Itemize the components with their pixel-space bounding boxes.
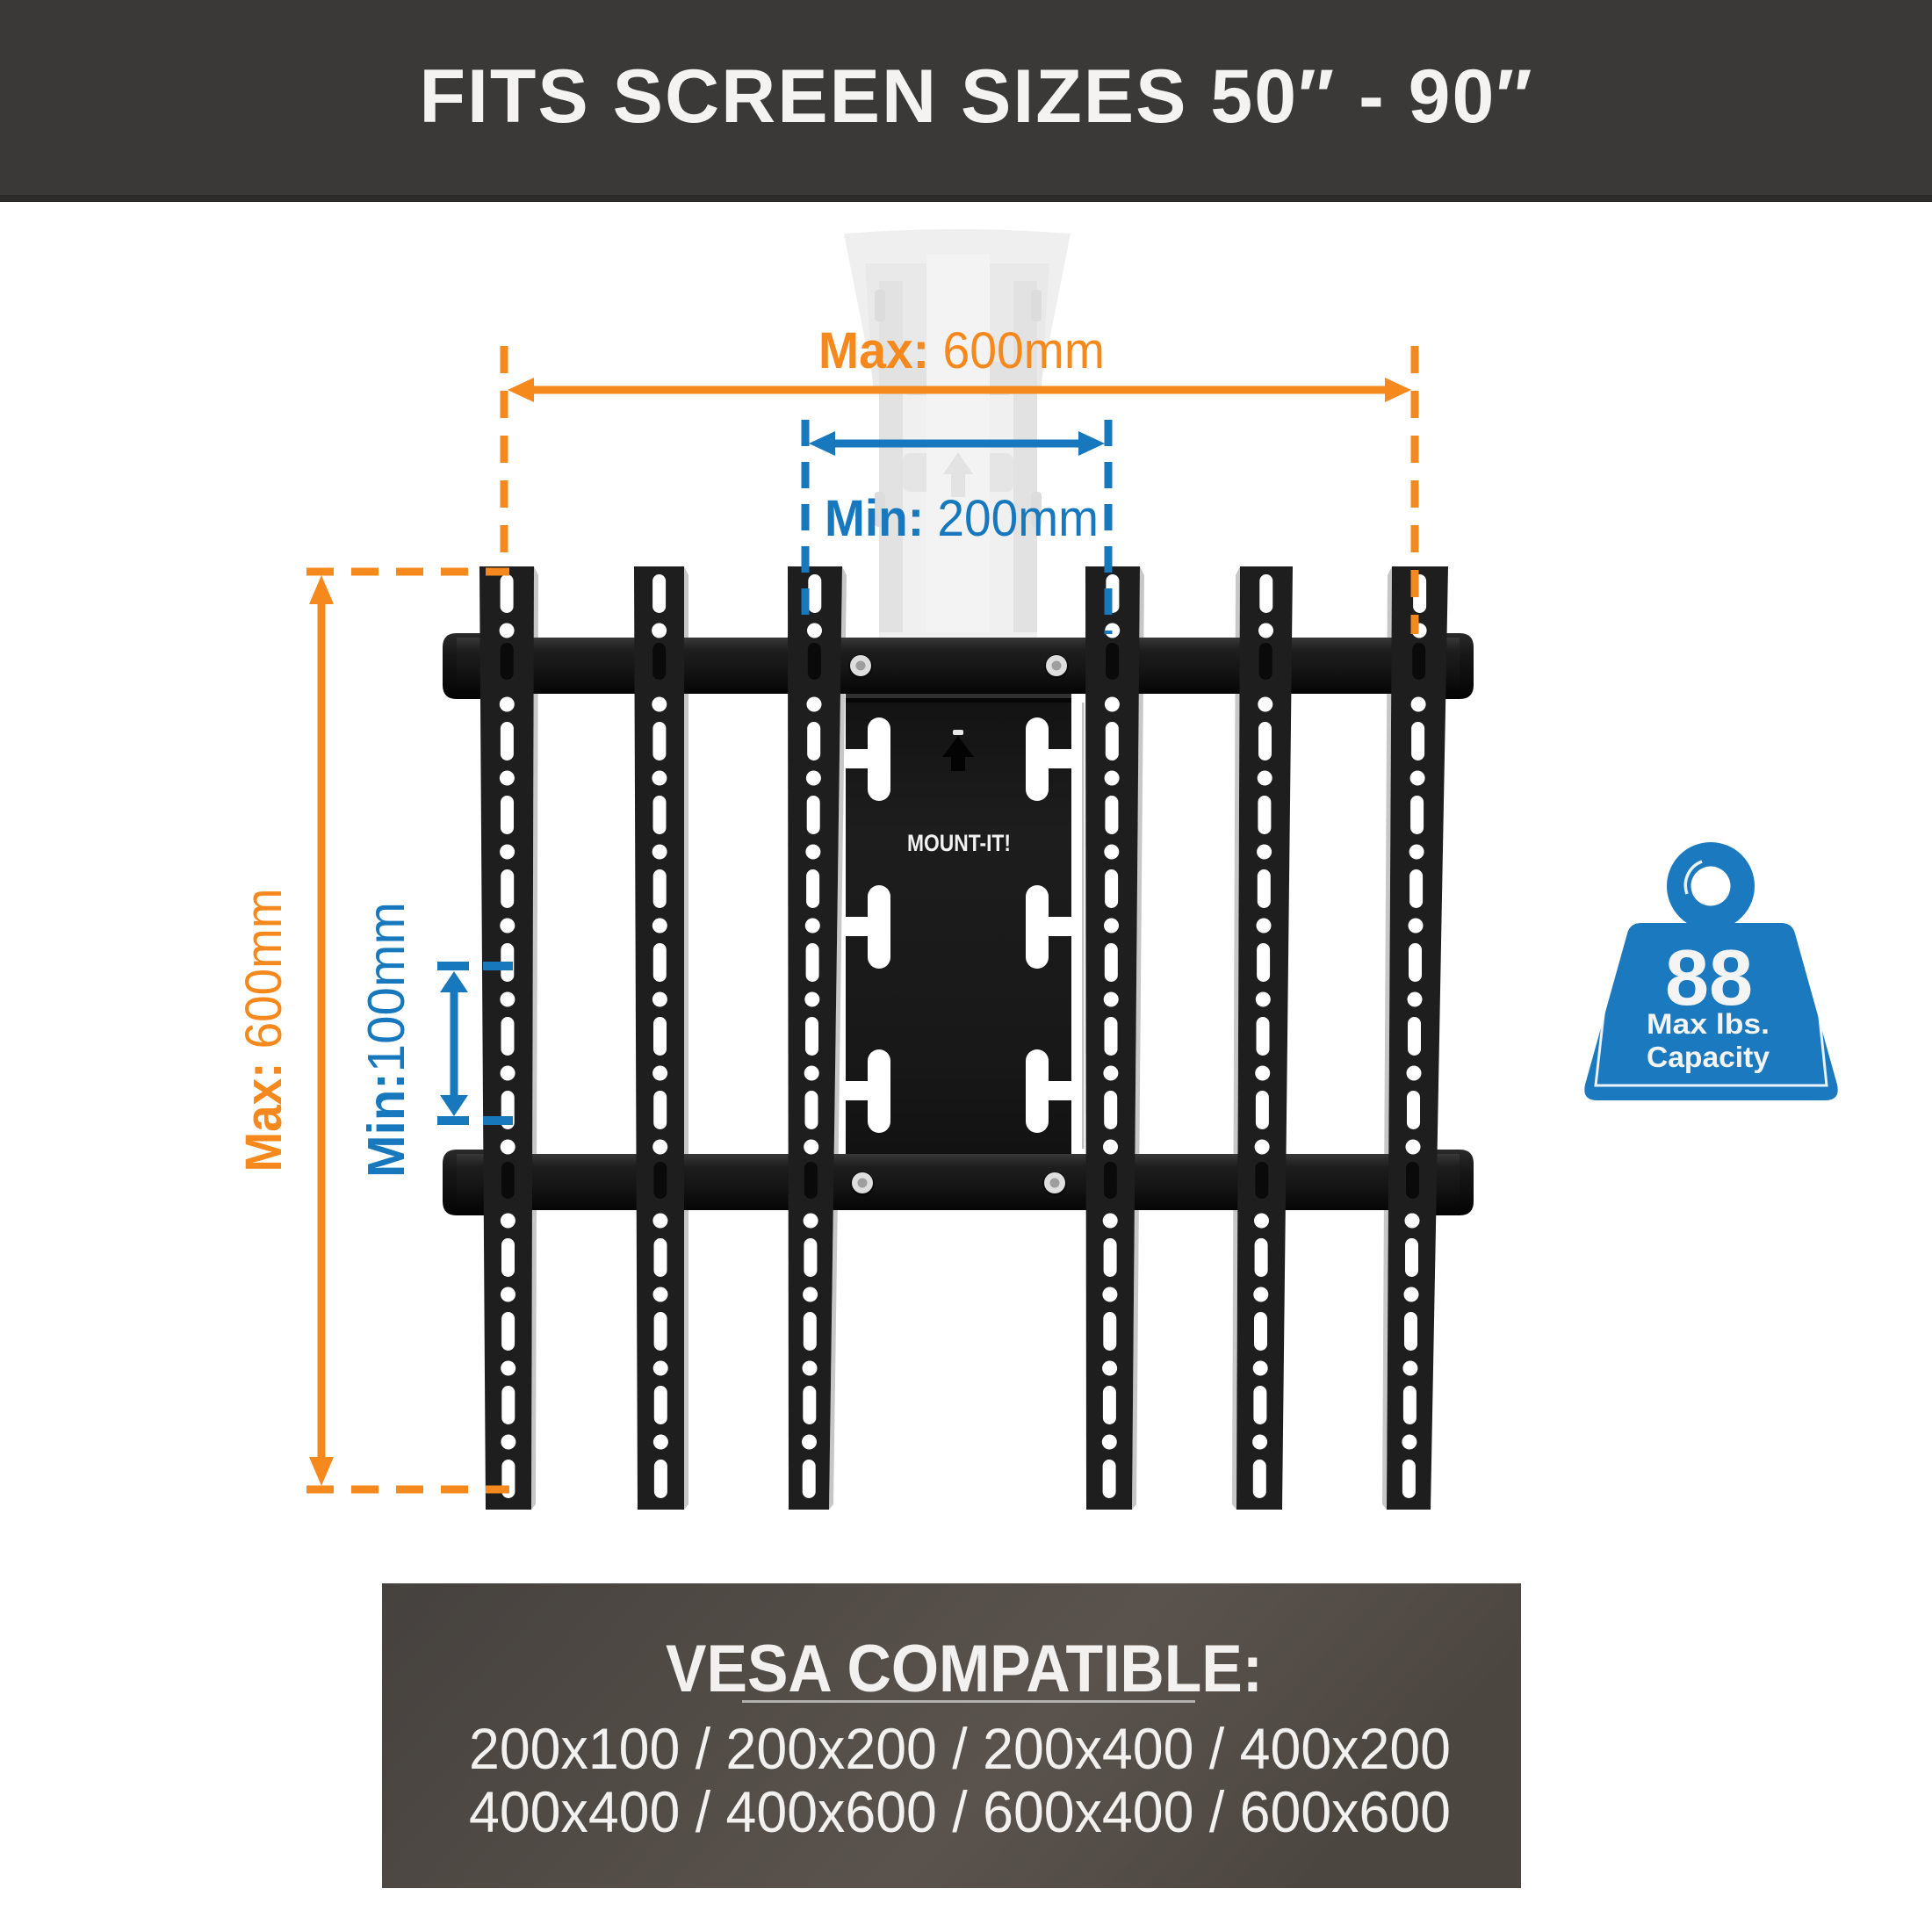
svg-text:200x100 / 200x200 / 200x400 /: 200x100 / 200x200 / 200x400 / 400x200 [469, 1716, 1451, 1781]
svg-text:FITS SCREEN SIZES 50″ - 90″: FITS SCREEN SIZES 50″ - 90″ [419, 54, 1533, 139]
svg-text:Min:100mm: Min:100mm [357, 902, 415, 1178]
svg-text:Max: 600mm: Max: 600mm [818, 322, 1105, 379]
svg-text:400x400 / 400x600 / 600x400 /: 400x400 / 400x600 / 600x400 / 600x600 [469, 1779, 1451, 1844]
svg-text:VESA COMPATIBLE:: VESA COMPATIBLE: [666, 1632, 1263, 1706]
svg-text:Max: 600mm: Max: 600mm [235, 889, 292, 1172]
svg-text:Min: 200mm: Min: 200mm [825, 490, 1099, 547]
svg-text:MOUNT-IT!: MOUNT-IT! [907, 830, 1011, 856]
svg-text:Capacity: Capacity [1647, 1041, 1770, 1073]
svg-text:Max lbs.: Max lbs. [1647, 1008, 1770, 1040]
